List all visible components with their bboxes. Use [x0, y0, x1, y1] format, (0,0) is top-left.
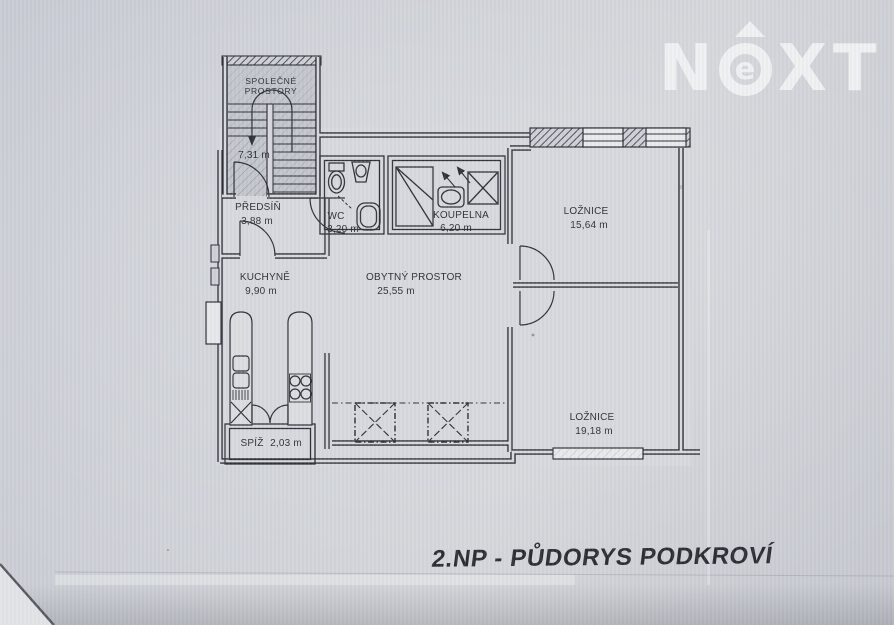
room-area-loznice2: 19,18 m	[575, 426, 613, 437]
speck-1	[532, 334, 535, 337]
speck-2	[167, 549, 169, 551]
stair-top-wall	[222, 56, 321, 65]
room-area-koupelna: 6,20 m	[440, 223, 472, 234]
drawing-caption: 2.NP - PŮDORYS PODKROVÍ	[430, 542, 775, 574]
room-label-common-1: SPOLEČNÉ	[245, 76, 297, 86]
window-2	[646, 128, 686, 147]
wall-pilaster-2	[211, 268, 219, 285]
crease-highlight	[55, 575, 575, 585]
room-area-predsin: 3,88 m	[241, 216, 273, 227]
room-label-loznice2: LOŽNICE	[570, 410, 615, 423]
window-1	[583, 128, 623, 147]
logo-ring-icon: e	[719, 43, 772, 96]
bottom-shadow	[0, 583, 894, 625]
kitchen-counter-right	[288, 312, 312, 425]
wall-pilaster-1	[211, 245, 219, 262]
room-label-spiz: SPÍŽ	[240, 436, 263, 449]
south-window-band	[553, 448, 643, 459]
logo-letter-n: N	[659, 42, 713, 96]
room-area-wc: 3,20 m	[327, 224, 359, 235]
logo-letter-e: e	[735, 55, 755, 85]
north-wall-window-band	[530, 128, 690, 147]
room-label-wc: WC	[327, 211, 344, 222]
vertical-crease	[707, 230, 710, 585]
room-area-kuchyne: 9,90 m	[245, 286, 277, 297]
logo-letter-t: T	[833, 42, 877, 96]
room-label-predsin: PŘEDSÍŇ	[235, 200, 281, 213]
window-3-hatch	[553, 448, 643, 459]
room-area-loznice1: 15,64 m	[570, 220, 608, 231]
room-label-obytny: OBYTNÝ PROSTOR	[366, 270, 462, 283]
room-area-landing: 7,31 m	[238, 150, 270, 161]
room-label-kuchyne: KUCHYNĚ	[240, 270, 290, 283]
staircase-common-space: SPOLEČNÉ PROSTORY 7,31 m	[222, 56, 321, 196]
room-label-loznice1: LOŽNICE	[564, 204, 609, 217]
next-logo: N e X T	[659, 41, 877, 97]
scanned-floor-plan-page: SPOLEČNÉ PROSTORY 7,31 m	[0, 0, 894, 625]
speck-3	[679, 185, 683, 189]
room-area-spiz: 2,03 m	[270, 438, 302, 449]
roof-arrow-icon	[735, 21, 765, 37]
room-label-common-2: PROSTORY	[245, 86, 298, 96]
room-label-koupelna: KOUPELNA	[433, 210, 489, 221]
window-left-niche	[206, 302, 221, 344]
room-area-obytny: 25,55 m	[377, 286, 415, 297]
logo-letter-x: X	[778, 42, 827, 96]
